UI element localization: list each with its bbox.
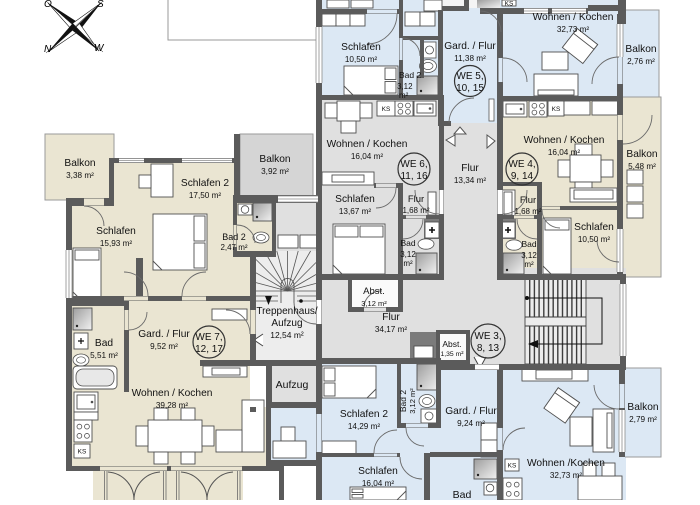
- svg-text:O: O: [44, 0, 52, 10]
- svg-text:10, 15: 10, 15: [456, 83, 484, 94]
- svg-text:9,24 m²: 9,24 m²: [457, 419, 485, 428]
- svg-text:WE 3,: WE 3,: [474, 331, 501, 342]
- svg-text:16,04 m²: 16,04 m²: [351, 152, 384, 161]
- svg-text:Wohnen / Kochen: Wohnen / Kochen: [524, 135, 605, 146]
- svg-text:Wohnen / Kochen: Wohnen / Kochen: [132, 388, 213, 399]
- svg-text:16,04 m²: 16,04 m²: [548, 148, 581, 157]
- svg-text:Gard. / Flur: Gard. / Flur: [138, 329, 190, 340]
- svg-text:2,79 m²: 2,79 m²: [629, 415, 657, 424]
- svg-text:WE 6,: WE 6,: [400, 159, 427, 170]
- svg-text:Abst.: Abst.: [442, 339, 461, 349]
- svg-text:Balkon: Balkon: [625, 44, 656, 55]
- svg-text:Schlafen: Schlafen: [574, 222, 614, 233]
- svg-text:10,50 m²: 10,50 m²: [578, 235, 611, 244]
- svg-text:3,12: 3,12: [400, 250, 416, 259]
- svg-text:KS: KS: [505, 1, 514, 8]
- svg-text:Bad 2: Bad 2: [399, 70, 421, 80]
- svg-text:KS: KS: [552, 106, 561, 113]
- svg-text:Schlafen 2: Schlafen 2: [181, 178, 229, 189]
- svg-text:Bad: Bad: [453, 489, 472, 500]
- svg-text:32,73 m²: 32,73 m²: [550, 471, 583, 480]
- svg-text:Flur: Flur: [408, 194, 424, 205]
- svg-text:Balkon: Balkon: [626, 149, 657, 160]
- svg-text:3,12 m²: 3,12 m²: [361, 299, 387, 308]
- svg-text:Bad 2: Bad 2: [222, 232, 246, 242]
- svg-text:Schlafen: Schlafen: [341, 42, 381, 53]
- svg-text:m²: m²: [399, 91, 409, 100]
- svg-text:N: N: [44, 44, 52, 55]
- svg-text:Schlafen: Schlafen: [96, 226, 136, 237]
- svg-text:3,38 m²: 3,38 m²: [66, 171, 94, 180]
- svg-text:Schlafen 2: Schlafen 2: [340, 409, 388, 420]
- svg-text:m²: m²: [524, 260, 534, 269]
- svg-text:12,54 m²: 12,54 m²: [270, 330, 304, 340]
- svg-text:Flur: Flur: [461, 163, 479, 174]
- svg-text:10,50 m²: 10,50 m²: [345, 55, 378, 64]
- svg-text:Flur: Flur: [520, 195, 536, 206]
- svg-text:34,17 m²: 34,17 m²: [375, 325, 408, 334]
- svg-text:9, 14: 9, 14: [511, 171, 534, 182]
- svg-text:11,38 m²: 11,38 m²: [454, 54, 486, 63]
- svg-text:Wohnen /Kochen: Wohnen /Kochen: [527, 458, 605, 469]
- svg-text:Balkon: Balkon: [259, 154, 290, 165]
- svg-text:3,12 m²: 3,12 m²: [408, 388, 417, 414]
- svg-text:3,92 m²: 3,92 m²: [261, 167, 289, 176]
- svg-text:2,47 m²: 2,47 m²: [220, 243, 247, 252]
- svg-text:WE 7,: WE 7,: [195, 332, 222, 343]
- svg-text:Bad: Bad: [521, 239, 536, 249]
- svg-text:Abst.: Abst.: [363, 286, 385, 297]
- svg-text:1,68 m²: 1,68 m²: [514, 207, 541, 216]
- svg-text:16,04 m²: 16,04 m²: [362, 479, 395, 488]
- svg-text:3,12: 3,12: [521, 251, 537, 260]
- svg-text:13,34 m²: 13,34 m²: [454, 176, 487, 185]
- svg-text:Aufzug: Aufzug: [271, 318, 302, 329]
- svg-text:13,67 m²: 13,67 m²: [339, 207, 372, 216]
- svg-text:Treppenhaus/: Treppenhaus/: [256, 306, 318, 317]
- svg-text:KS: KS: [508, 463, 517, 470]
- svg-text:5,51 m²: 5,51 m²: [90, 351, 118, 360]
- svg-text:Bad: Bad: [95, 338, 113, 349]
- svg-text:1,35 m²: 1,35 m²: [440, 351, 464, 358]
- svg-text:5,48 m²: 5,48 m²: [628, 162, 656, 171]
- svg-text:KS: KS: [78, 449, 87, 456]
- svg-text:WE 4,: WE 4,: [508, 159, 535, 170]
- svg-text:WE 5,: WE 5,: [456, 71, 483, 82]
- svg-text:1,68 m²: 1,68 m²: [402, 206, 429, 215]
- svg-text:8, 13: 8, 13: [477, 343, 500, 354]
- svg-text:W: W: [94, 43, 105, 54]
- svg-text:9,52 m²: 9,52 m²: [150, 342, 178, 351]
- svg-text:3,12: 3,12: [397, 82, 413, 91]
- svg-text:2,76 m²: 2,76 m²: [627, 57, 655, 66]
- svg-text:Gard. / Flur: Gard. / Flur: [445, 406, 497, 417]
- svg-text:32,73 m²: 32,73 m²: [557, 25, 590, 34]
- svg-text:m²: m²: [403, 259, 413, 268]
- svg-text:Balkon: Balkon: [64, 158, 95, 169]
- svg-text:Bad: Bad: [400, 238, 415, 248]
- svg-text:12, 17: 12, 17: [195, 344, 223, 355]
- svg-text:Gard. / Flur: Gard. / Flur: [444, 41, 496, 52]
- svg-text:Flur: Flur: [382, 312, 400, 323]
- svg-text:15,93 m²: 15,93 m²: [100, 239, 133, 248]
- svg-text:11, 16: 11, 16: [400, 171, 427, 182]
- svg-text:Aufzug: Aufzug: [276, 379, 309, 391]
- svg-text:Balkon: Balkon: [627, 402, 658, 413]
- svg-text:Schlafen: Schlafen: [335, 194, 375, 205]
- svg-text:Bad 2: Bad 2: [398, 390, 408, 412]
- svg-text:S: S: [97, 0, 104, 10]
- svg-text:Schlafen: Schlafen: [358, 466, 398, 477]
- svg-text:14,29 m²: 14,29 m²: [348, 422, 381, 431]
- svg-text:39,28 m²: 39,28 m²: [156, 401, 189, 410]
- svg-text:17,50 m²: 17,50 m²: [189, 191, 222, 200]
- svg-text:Wohnen / Kochen: Wohnen / Kochen: [327, 139, 408, 150]
- svg-text:KS: KS: [382, 106, 391, 113]
- svg-text:Wohnen / Kochen: Wohnen / Kochen: [533, 12, 614, 23]
